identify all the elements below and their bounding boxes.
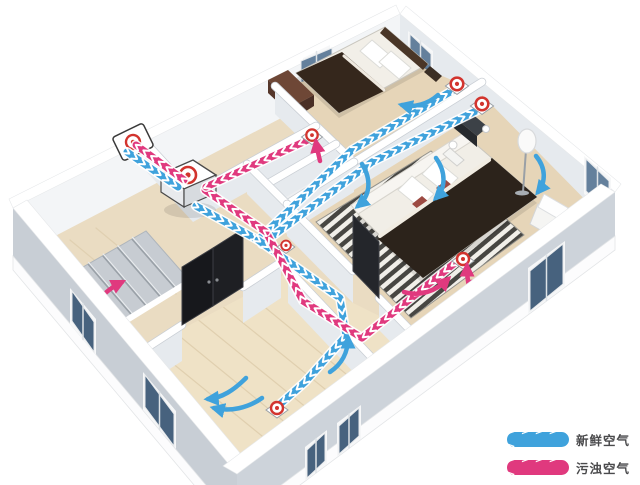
ventilation-diagram: 新鲜空气 污浊空气 [0, 0, 640, 485]
legend-item-stale-air: 污浊空气 [507, 458, 630, 477]
legend-item-fresh-air: 新鲜空气 [507, 430, 630, 449]
stale-air-arrow-icon [507, 460, 569, 475]
legend-label-fresh-air: 新鲜空气 [576, 430, 630, 449]
legend-label-stale-air: 污浊空气 [576, 458, 630, 477]
floorplan-illustration [0, 0, 640, 485]
fresh-air-arrow-icon [507, 432, 569, 447]
legend: 新鲜空气 污浊空气 [507, 430, 630, 477]
